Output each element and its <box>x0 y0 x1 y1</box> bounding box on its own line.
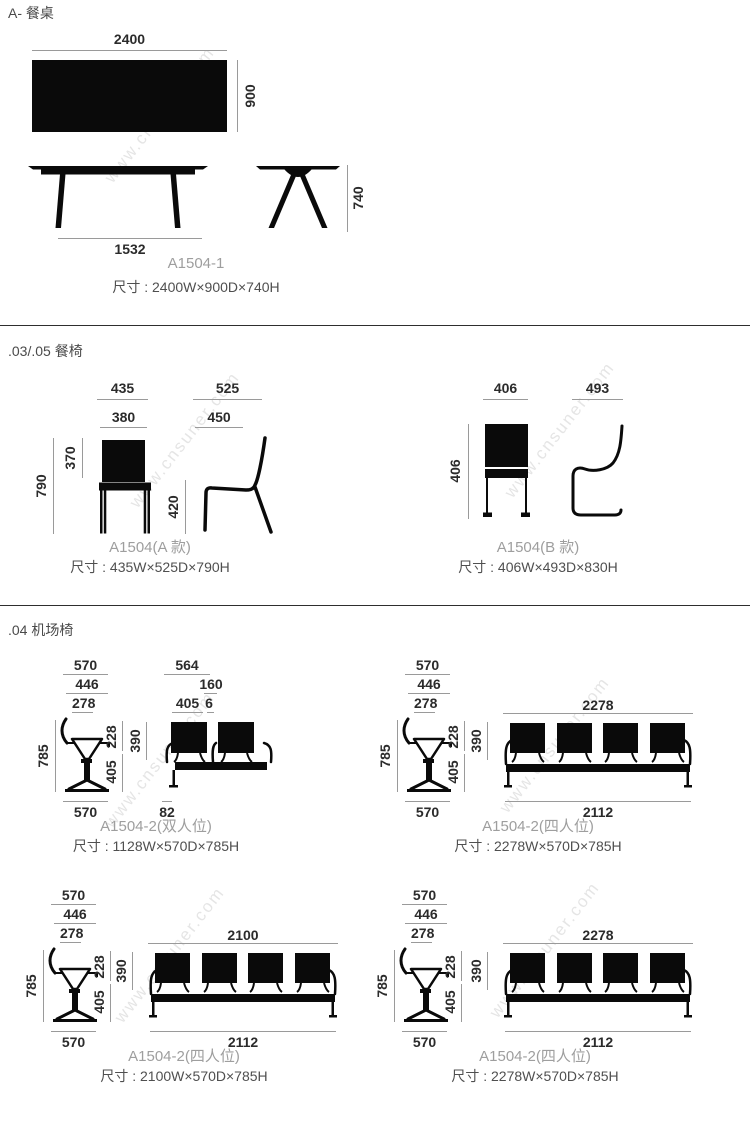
dim-side-back-height: 228 <box>92 955 106 978</box>
seat-back <box>171 722 207 753</box>
dim-line <box>483 399 528 400</box>
seat-back <box>557 953 592 983</box>
dim-table-top-width: 2400 <box>32 31 227 47</box>
dim-side-seat-height: 405 <box>104 760 118 783</box>
dim-line <box>53 438 54 534</box>
seat-back <box>650 953 685 983</box>
dim-front-top: 564 <box>164 657 210 673</box>
seat-back <box>202 953 237 983</box>
dim-side-height: 785 <box>24 974 38 997</box>
table-top-edge <box>256 166 340 170</box>
dim-line <box>505 801 691 802</box>
dim-line <box>164 674 210 675</box>
dim-line <box>397 720 398 792</box>
chair-column <box>423 993 429 1010</box>
seat-supports <box>157 983 329 992</box>
beam-leg <box>173 770 176 786</box>
dim-side-w2: 446 <box>408 676 450 692</box>
dim-line <box>185 480 186 534</box>
model-label: A1504(B 款) <box>497 536 580 557</box>
dim-side-base-width: 570 <box>405 804 450 820</box>
dim-line <box>464 721 465 751</box>
dim-line <box>405 674 450 675</box>
chair-column <box>84 763 90 780</box>
seat-supports <box>512 983 684 992</box>
table-front-view <box>28 160 208 240</box>
spec-sheet-page: www.cnsuner.com www.cnsuner.com www.cnsu… <box>0 0 750 1128</box>
beam <box>175 762 267 770</box>
dim-line <box>408 693 450 694</box>
dim-side-back-height: 228 <box>104 725 118 748</box>
seat-back <box>248 953 283 983</box>
dim-line <box>411 942 432 943</box>
airport-4seat-front-view <box>503 719 693 789</box>
dim-side-w2: 446 <box>54 906 96 922</box>
dim-line <box>66 693 108 694</box>
dim-side-w3: 278 <box>411 925 432 941</box>
dim-line <box>122 754 123 792</box>
dim-line <box>150 1031 336 1032</box>
table-leg <box>297 169 328 228</box>
section2-heading: .03/.05 餐椅 <box>8 341 83 361</box>
dim-line <box>405 923 447 924</box>
dim-side-height: 785 <box>375 974 389 997</box>
dim-line <box>572 399 623 400</box>
size-label: 尺寸 : 435W×525D×790H <box>70 557 230 577</box>
dim-line <box>402 1031 447 1032</box>
beam-foot <box>329 1015 337 1018</box>
dim-chairA-depth-inner: 450 <box>195 409 243 425</box>
dim-side-w1: 570 <box>51 887 96 903</box>
dim-line <box>503 713 693 714</box>
airport-group-4: 570 446 278 785 228 405 570 2278 390 <box>339 830 699 1090</box>
beam-leg <box>332 1002 335 1017</box>
chair-column <box>426 763 432 780</box>
section-divider <box>0 325 750 326</box>
chair-base-legs <box>69 780 105 789</box>
model-label: A1504-2(四人位) <box>128 1045 240 1066</box>
chair-collar <box>420 989 431 993</box>
chair-cantilever-profile <box>573 426 622 515</box>
model-label: A1504-1 <box>168 255 225 272</box>
seat-back <box>603 723 638 753</box>
chair-backrest <box>404 719 409 743</box>
dim-line <box>51 904 96 905</box>
dim-line <box>195 427 243 428</box>
beam <box>506 994 690 1002</box>
chair-backrest <box>62 719 67 743</box>
dim-side-w2: 446 <box>405 906 447 922</box>
dim-line <box>505 1031 691 1032</box>
dim-line <box>132 952 133 990</box>
chair-leg <box>486 478 488 515</box>
dim-front-back-height: 390 <box>469 959 483 982</box>
seat-back <box>155 953 190 983</box>
beam-foot <box>149 1015 157 1018</box>
seat-back <box>603 953 638 983</box>
chair-collar <box>69 989 80 993</box>
dim-side-w1: 570 <box>405 657 450 673</box>
beam <box>506 764 690 772</box>
chair-base-bar <box>65 789 109 792</box>
dim-line <box>468 424 469 519</box>
chair-back <box>102 440 145 482</box>
dim-side-height: 785 <box>36 744 50 767</box>
dim-line <box>97 399 148 400</box>
dim-line <box>63 674 108 675</box>
beam-foot <box>504 785 512 788</box>
table-leg <box>56 174 66 228</box>
dim-line <box>58 238 202 239</box>
beam-foot <box>169 785 178 788</box>
dim-line <box>63 801 108 802</box>
dim-line <box>237 60 238 132</box>
dim-front-top3a: 405 <box>172 695 203 711</box>
dim-front-top: 2100 <box>148 927 338 943</box>
chair-back <box>485 424 528 467</box>
dim-line <box>100 427 147 428</box>
size-label: 尺寸 : 2400W×900D×740H <box>112 277 279 297</box>
beam-leg <box>687 1002 690 1017</box>
airport-group-2: 570 446 278 785 228 405 570 2278 390 <box>342 600 702 860</box>
chair-leg <box>104 491 107 534</box>
dim-front-top: 2278 <box>503 927 693 943</box>
dim-chairA-width-inner: 380 <box>100 409 147 425</box>
seat-back <box>218 722 254 753</box>
dim-line <box>204 693 217 694</box>
seat-back <box>557 723 592 753</box>
chair-leg <box>100 491 103 534</box>
dim-line <box>122 721 123 751</box>
dim-line <box>60 942 81 943</box>
dim-front-top3b: 6 <box>203 695 215 711</box>
dim-chairB-depth: 493 <box>572 380 623 396</box>
dim-line <box>193 399 262 400</box>
dim-line <box>487 722 488 760</box>
size-label: 尺寸 : 406W×493D×830H <box>458 557 618 577</box>
dim-line <box>414 712 435 713</box>
dim-table-height: 740 <box>351 186 365 209</box>
chair-foot <box>483 513 492 518</box>
seat-supports <box>512 753 684 762</box>
beam-leg <box>507 772 510 787</box>
chair-backrest <box>50 949 55 973</box>
beam-leg <box>507 1002 510 1017</box>
chairA-front-view <box>99 436 151 534</box>
airport-2seat-front-view <box>163 718 275 790</box>
chair-base-bar <box>404 1019 448 1022</box>
dim-chairA-height: 790 <box>34 474 48 497</box>
dim-line <box>148 943 338 944</box>
dim-line <box>162 801 172 802</box>
airport-group-3: 570 446 278 785 228 405 570 2100 390 <box>0 830 348 1090</box>
chair-seat <box>99 483 151 491</box>
dim-line <box>32 50 227 51</box>
chair-base-bar <box>53 1019 97 1022</box>
beam-foot <box>684 1015 692 1018</box>
beam-leg <box>687 772 690 787</box>
dim-line <box>402 904 447 905</box>
chair-collar <box>81 759 92 763</box>
chairB-side-view <box>565 420 627 520</box>
airport-4seat-front-view <box>148 949 338 1019</box>
chair-rear-leg <box>255 487 271 532</box>
chair-base-legs <box>411 780 447 789</box>
airport-4seat-front-view <box>503 949 693 1019</box>
dim-table-top-depth: 900 <box>243 84 257 107</box>
dim-side-w3: 278 <box>60 925 81 941</box>
table-top-view <box>32 60 227 132</box>
dim-line <box>461 984 462 1022</box>
table-apron <box>41 169 195 175</box>
dim-side-seat-height: 405 <box>446 760 460 783</box>
chair-seat <box>414 739 444 759</box>
beam-foot <box>684 785 692 788</box>
table-leg <box>171 174 181 228</box>
size-label: 尺寸 : 2278W×570D×785H <box>451 1066 618 1086</box>
dim-side-w3: 278 <box>414 695 435 711</box>
dim-side-back-height: 228 <box>443 955 457 978</box>
beam <box>151 994 335 1002</box>
dim-line <box>72 712 93 713</box>
dim-front-back-height: 390 <box>114 959 128 982</box>
dim-line <box>43 950 44 1022</box>
chair-leg <box>525 478 527 515</box>
beam-foot <box>504 1015 512 1018</box>
dim-side-back-height: 228 <box>446 725 460 748</box>
chairB-front-view <box>483 420 530 519</box>
dim-front-top2: 160 <box>199 676 223 692</box>
dim-line <box>207 712 214 713</box>
dim-side-w2: 446 <box>66 676 108 692</box>
dim-side-seat-height: 405 <box>443 990 457 1013</box>
chair-seat <box>60 969 90 989</box>
dim-line <box>146 722 147 760</box>
chair-leg <box>148 491 151 534</box>
chairA-side-view <box>200 430 272 534</box>
dim-line <box>464 754 465 792</box>
model-label: A1504(A 款) <box>109 536 191 557</box>
dim-line <box>55 720 56 792</box>
dim-chairB-height: 406 <box>448 459 462 482</box>
seat-back <box>295 953 330 983</box>
dim-chairA-seat-height: 420 <box>166 495 180 518</box>
dim-front-back-height: 390 <box>469 729 483 752</box>
dim-line <box>82 438 83 478</box>
dim-front-top: 2278 <box>503 697 693 713</box>
airport-group-1: 570 446 278 785 228 405 570 564 160 405 … <box>0 600 360 860</box>
chair-profile <box>205 438 265 530</box>
dim-line <box>394 950 395 1022</box>
chair-base-legs <box>408 1010 444 1019</box>
dim-line <box>347 165 348 232</box>
chair-base-bar <box>407 789 451 792</box>
chair-leg <box>144 491 147 534</box>
model-label: A1504-2(四人位) <box>479 1045 591 1066</box>
dim-line <box>51 1031 96 1032</box>
beam-leg <box>152 1002 155 1017</box>
chair-foot <box>521 513 530 518</box>
chair-seat <box>485 469 528 478</box>
dim-line <box>487 952 488 990</box>
seat-back <box>650 723 685 753</box>
dim-line <box>110 951 111 981</box>
dim-line <box>405 801 450 802</box>
seat-back <box>510 953 545 983</box>
dim-line <box>54 923 96 924</box>
chair-seat <box>411 969 441 989</box>
section1-heading: A- 餐桌 <box>8 3 54 23</box>
chair-column <box>72 993 78 1010</box>
chair-seat <box>72 739 102 759</box>
table-top-edge <box>28 166 208 170</box>
dim-chairA-width-outer: 435 <box>97 380 148 396</box>
size-label: 尺寸 : 2100W×570D×785H <box>100 1066 267 1086</box>
dim-line <box>110 984 111 1022</box>
dim-side-seat-height: 405 <box>92 990 106 1013</box>
table-side-view <box>256 160 340 240</box>
dim-line <box>461 951 462 981</box>
dim-side-w3: 278 <box>72 695 93 711</box>
dim-chairA-depth-outer: 525 <box>193 380 262 396</box>
dim-line <box>503 943 693 944</box>
dim-chairB-width: 406 <box>483 380 528 396</box>
seat-back <box>510 723 545 753</box>
chair-backrest <box>401 949 406 973</box>
chair-base-legs <box>57 1010 93 1019</box>
dim-front-back-height: 390 <box>128 729 142 752</box>
table-leg <box>269 169 300 228</box>
dim-chairA-back-height: 370 <box>63 446 77 469</box>
dim-side-w1: 570 <box>63 657 108 673</box>
dim-side-height: 785 <box>378 744 392 767</box>
dim-line <box>172 712 203 713</box>
dim-side-base-width: 570 <box>402 1034 447 1050</box>
dim-side-base-width: 570 <box>51 1034 96 1050</box>
chair-collar <box>423 759 434 763</box>
dim-side-w1: 570 <box>402 887 447 903</box>
